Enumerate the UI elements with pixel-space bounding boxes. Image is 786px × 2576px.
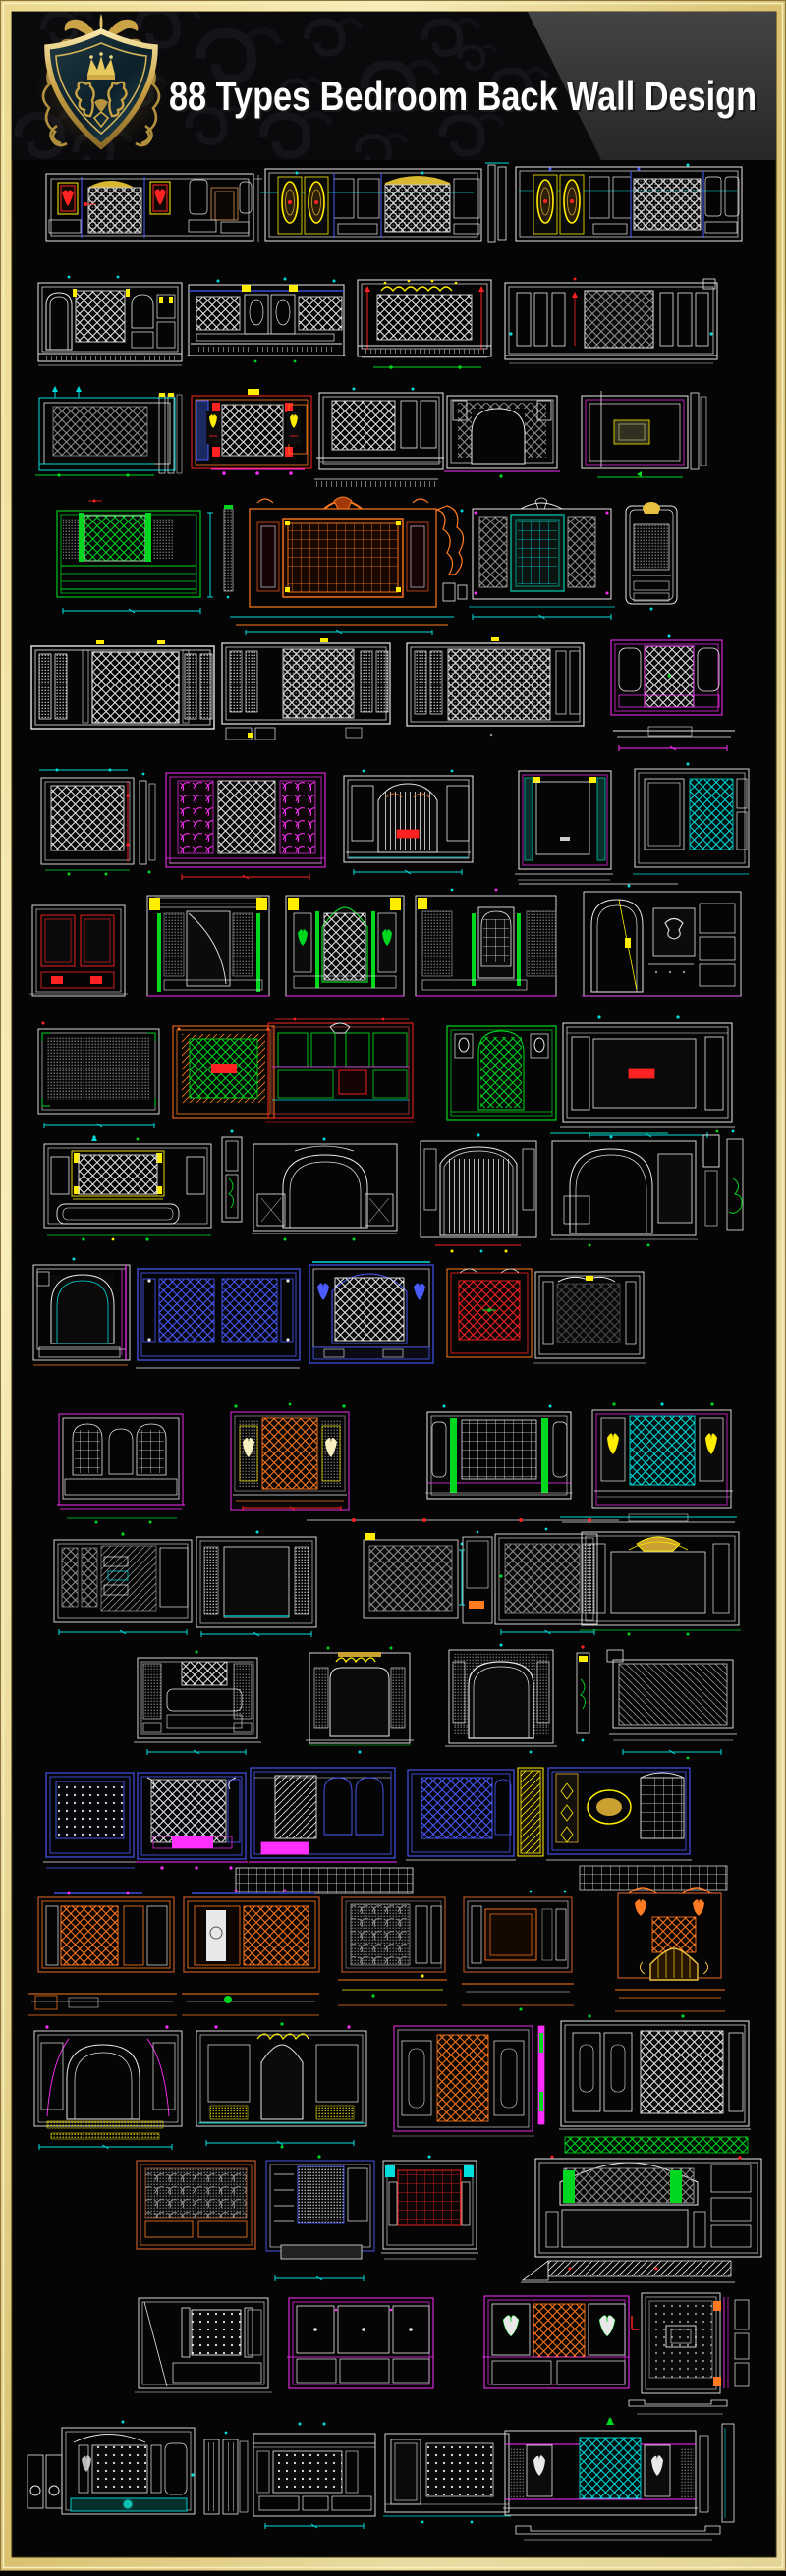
svg-text:88 Types Bedroom Back Wall Des: 88 Types Bedroom Back Wall Design bbox=[169, 73, 757, 119]
